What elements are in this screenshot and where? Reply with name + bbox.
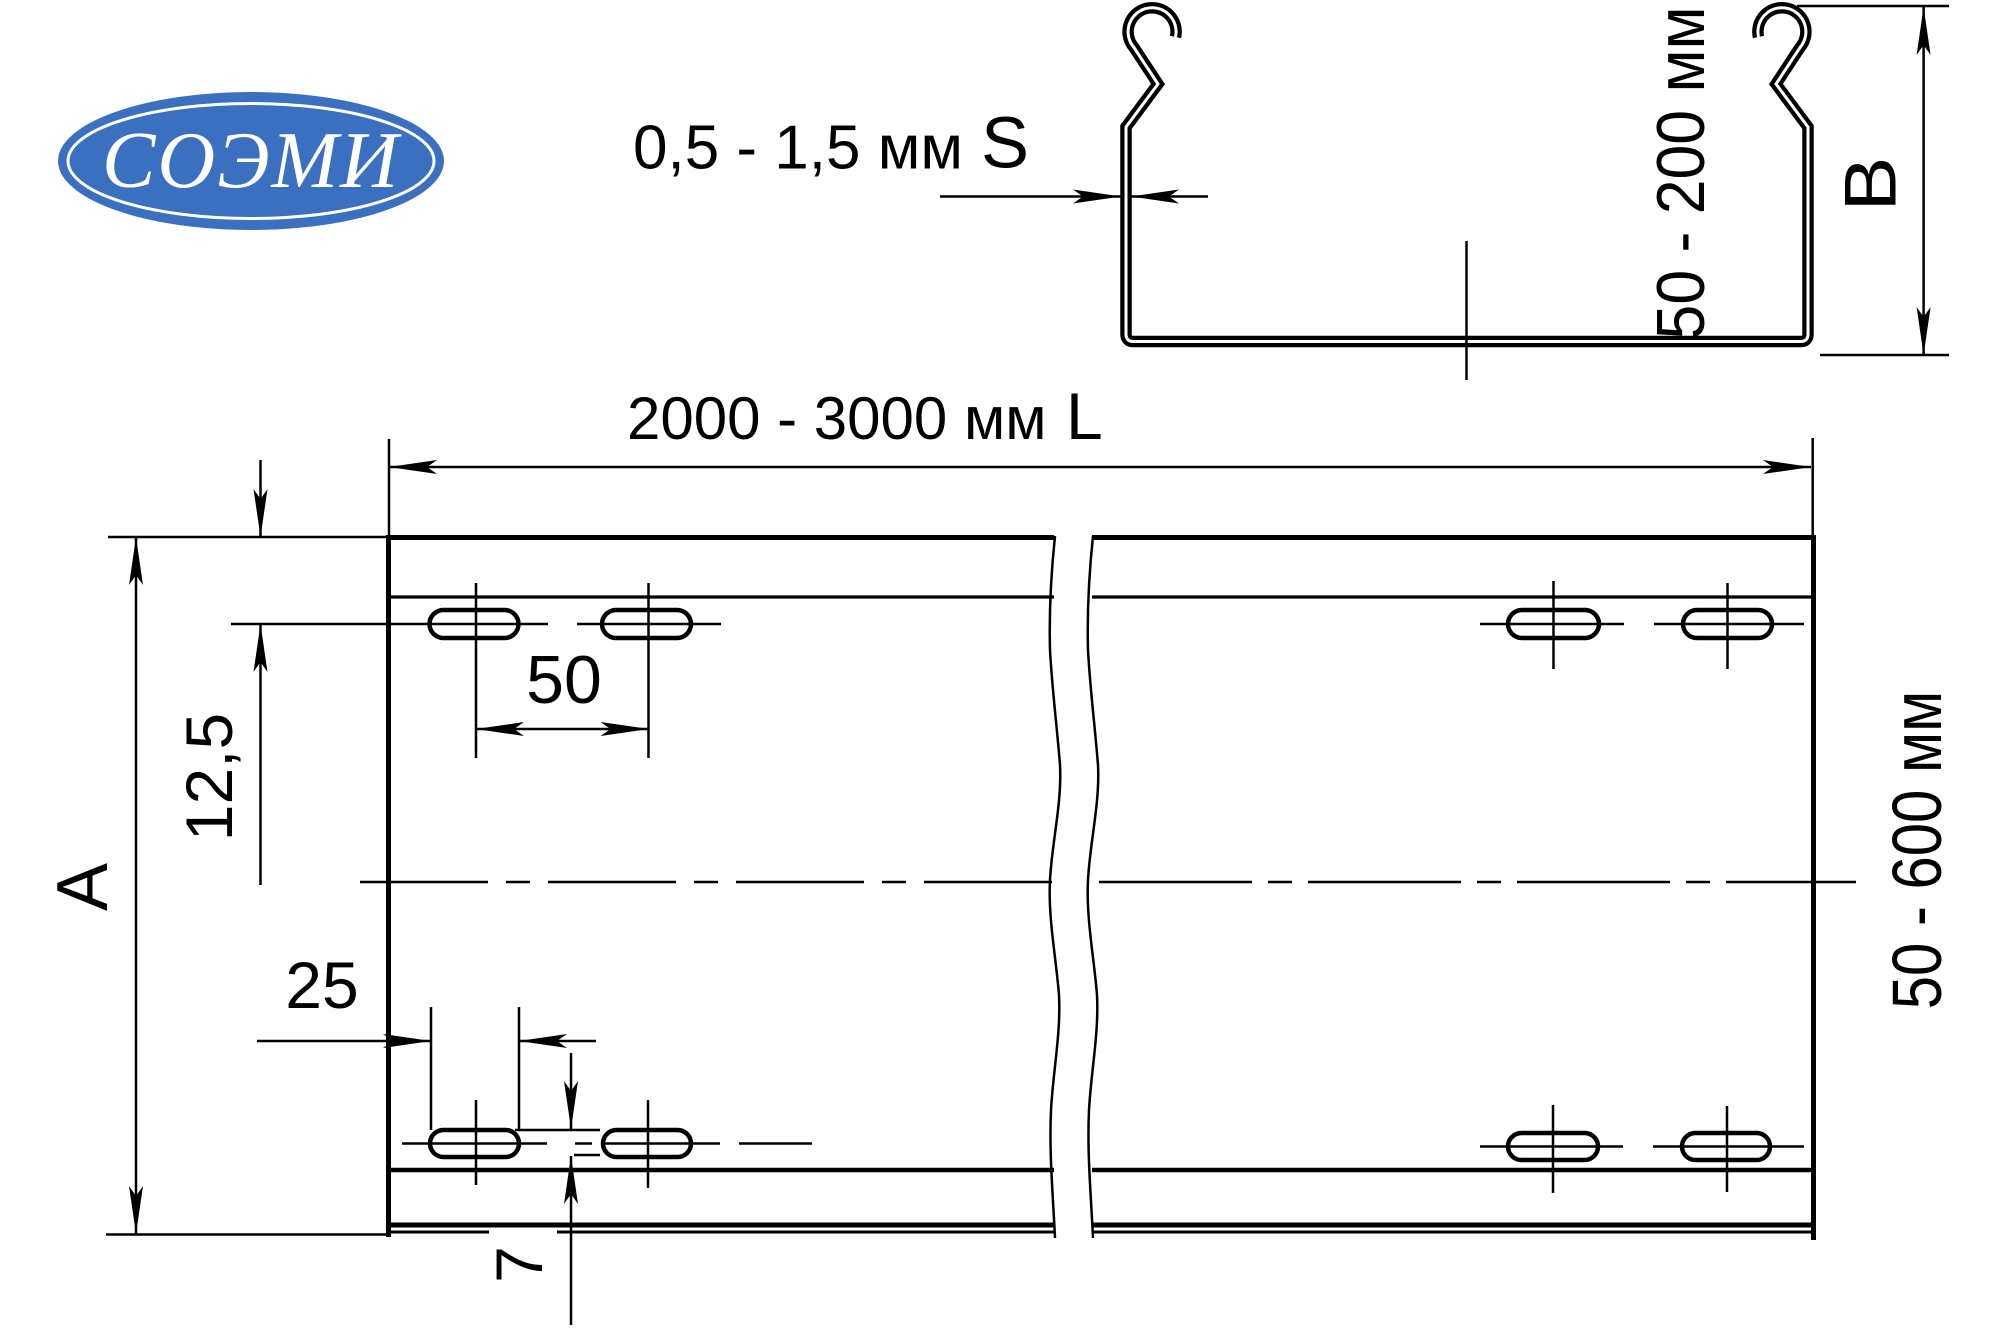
svg-text:0,5 - 1,5 мм: 0,5 - 1,5 мм (633, 114, 963, 183)
svg-text:L: L (1066, 379, 1103, 453)
svg-text:50 - 600 мм: 50 - 600 мм (1878, 691, 1956, 1009)
svg-text:50 - 200 мм: 50 - 200 мм (1643, 7, 1719, 340)
svg-text:12,5: 12,5 (172, 713, 246, 841)
svg-text:50: 50 (526, 642, 602, 718)
svg-text:СОЭМИ: СОЭМИ (102, 117, 402, 205)
svg-text:A: A (43, 863, 123, 911)
svg-text:25: 25 (285, 948, 358, 1022)
svg-text:2000 - 3000 мм: 2000 - 3000 мм (627, 385, 1046, 452)
svg-text:7: 7 (482, 1246, 556, 1283)
svg-text:S: S (981, 104, 1029, 184)
svg-text:B: B (1829, 156, 1911, 211)
